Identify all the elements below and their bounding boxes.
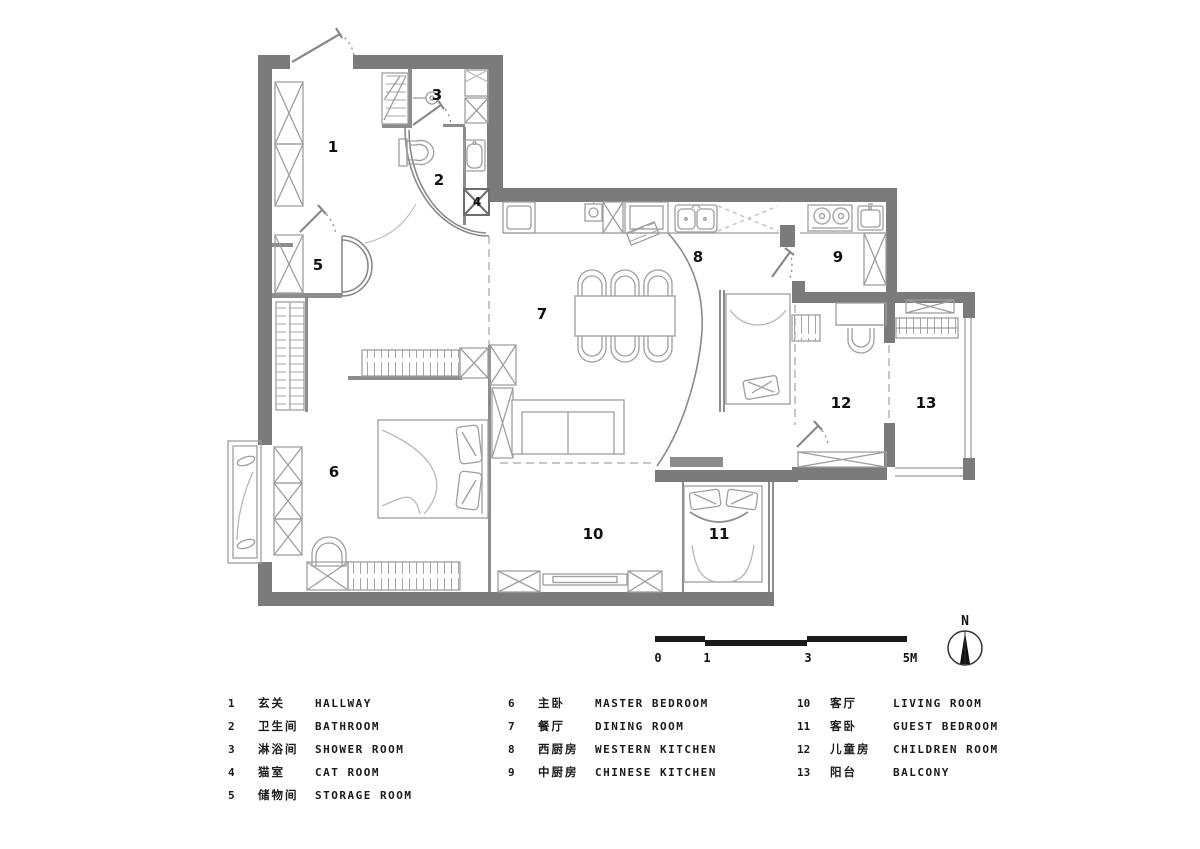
legend-room-name-en: MASTER BEDROOM — [595, 692, 709, 715]
door-swing-arc — [365, 204, 416, 243]
legend-room-name-cn: 中厨房 — [538, 761, 595, 784]
legend-row: 6 主卧 MASTER BEDROOM — [508, 692, 717, 715]
legend-room-number: 2 — [228, 715, 258, 738]
sofa-icon — [512, 400, 624, 454]
legend-room-number: 10 — [797, 692, 830, 715]
small-sink-icon — [585, 201, 602, 221]
cabinet-icon — [498, 571, 540, 592]
north-label: N — [961, 614, 969, 629]
scale-bar: 0 1 3 5M — [654, 636, 917, 665]
legend-row: 4 猫室 CAT ROOM — [228, 761, 412, 784]
dining-table-icon — [575, 296, 675, 336]
legend-room-name-en: STORAGE ROOM — [315, 784, 412, 807]
kitchen-door-icon — [772, 248, 794, 278]
entry-door-icon — [292, 28, 354, 62]
desk-chair-icon — [848, 328, 874, 353]
legend-room-number: 9 — [508, 761, 538, 784]
legend-column-3: 10 客厅 LIVING ROOM 11 客卧 GUEST BEDROOM 12… — [797, 692, 999, 784]
stove-icon — [808, 205, 852, 231]
legend-row: 12 儿童房 CHILDREN ROOM — [797, 738, 999, 761]
bay-window — [228, 441, 261, 563]
room-label-8: 8 — [693, 248, 703, 266]
room-label-11: 11 — [709, 525, 730, 543]
legend-room-number: 4 — [228, 761, 258, 784]
legend-column-2: 6 主卧 MASTER BEDROOM 7 餐厅 DINING ROOM 8 西… — [508, 692, 717, 784]
room-10-living — [498, 400, 662, 592]
legend-room-name-cn: 主卧 — [538, 692, 595, 715]
shelf-icon — [465, 70, 488, 96]
wardrobe-hanging-icon — [348, 562, 460, 590]
cabinet-icon — [274, 447, 302, 483]
legend-room-name-cn: 客卧 — [830, 715, 893, 738]
legend-room-name-cn: 餐厅 — [538, 715, 595, 738]
legend-room-name-en: SHOWER ROOM — [315, 738, 404, 761]
washbasin-icon — [464, 140, 485, 171]
floor-plan-page: 1 2 3 4 5 6 7 8 9 10 11 12 13 0 1 3 5M N… — [0, 0, 1200, 849]
double-bed-icon — [378, 420, 488, 518]
scale-tick-5m: 5M — [903, 651, 917, 665]
legend-room-number: 1 — [228, 692, 258, 715]
room-3-shower — [413, 70, 488, 123]
room-8-western-kitchen — [503, 201, 779, 245]
legend-room-number: 8 — [508, 738, 538, 761]
cabinet-icon — [490, 345, 516, 385]
floor-plan-drawing: 1 2 3 4 5 6 7 8 9 10 11 12 13 0 1 3 5M N — [0, 0, 1200, 680]
legend-room-name-en: DINING ROOM — [595, 715, 684, 738]
legend-room-name-en: WESTERN KITCHEN — [595, 738, 717, 761]
legend-room-number: 12 — [797, 738, 830, 761]
legend-row: 1 玄关 HALLWAY — [228, 692, 412, 715]
room-label-4: 4 — [473, 195, 481, 209]
wardrobe-icon — [275, 144, 303, 206]
legend-room-name-en: CAT ROOM — [315, 761, 380, 784]
children-room-door-icon — [797, 421, 828, 447]
storage-door-icon — [300, 205, 336, 235]
legend-room-name-en: GUEST BEDROOM — [893, 715, 999, 738]
north-arrow-icon: N — [948, 614, 982, 665]
legend-room-name-cn: 玄关 — [258, 692, 315, 715]
legend-room-name-cn: 阳台 — [830, 761, 893, 784]
room-label-7: 7 — [537, 305, 547, 323]
desk-icon — [836, 303, 886, 325]
legend-room-name-en: CHINESE KITCHEN — [595, 761, 717, 784]
legend-row: 5 储物间 STORAGE ROOM — [228, 784, 412, 807]
legend-row: 11 客卧 GUEST BEDROOM — [797, 715, 999, 738]
legend-room-name-en: LIVING ROOM — [893, 692, 982, 715]
legend-row: 13 阳台 BALCONY — [797, 761, 999, 784]
cabinet-icon — [864, 233, 886, 285]
cabinet-icon — [465, 98, 488, 123]
legend-room-number: 11 — [797, 715, 830, 738]
room-13-balcony — [896, 300, 958, 338]
dining-chairs-bottom — [578, 336, 672, 362]
room-label-5: 5 — [313, 256, 323, 274]
room-9-chinese-kitchen — [800, 204, 886, 285]
legend-room-number: 5 — [228, 784, 258, 807]
legend-row: 8 西厨房 WESTERN KITCHEN — [508, 738, 717, 761]
legend-row: 2 卫生间 BATHROOM — [228, 715, 412, 738]
scale-tick-3: 3 — [804, 651, 811, 665]
cabinet-icon — [492, 388, 513, 458]
wardrobe-hanging-icon — [362, 350, 460, 376]
legend-room-name-cn: 淋浴间 — [258, 738, 315, 761]
wardrobe-icon — [275, 82, 303, 144]
wardrobe-icon — [798, 452, 886, 467]
scale-tick-0: 0 — [654, 651, 661, 665]
room-label-13: 13 — [916, 394, 937, 412]
room-5-storage — [342, 236, 372, 296]
legend-room-name-cn: 客厅 — [830, 692, 893, 715]
room-12-children-room — [726, 294, 886, 467]
room-label-2: 2 — [434, 171, 444, 189]
child-bed-icon — [726, 294, 790, 404]
legend-room-name-cn: 储物间 — [258, 784, 315, 807]
cabinet-icon — [274, 519, 302, 555]
legend-room-name-cn: 卫生间 — [258, 715, 315, 738]
legend-room-number: 3 — [228, 738, 258, 761]
dining-chairs-top — [578, 270, 672, 296]
legend-room-name-cn: 儿童房 — [830, 738, 893, 761]
kitchen-sink-icon — [858, 204, 883, 230]
cabinet-icon — [274, 483, 302, 519]
legend-room-number: 6 — [508, 692, 538, 715]
room-label-9: 9 — [833, 248, 843, 266]
legend-row: 9 中厨房 CHINESE KITCHEN — [508, 761, 717, 784]
kitchen-curved-wall — [657, 233, 702, 466]
cabinet-icon — [460, 348, 488, 378]
scale-tick-1: 1 — [703, 651, 710, 665]
legend-room-name-en: HALLWAY — [315, 692, 372, 715]
legend-row: 7 餐厅 DINING ROOM — [508, 715, 717, 738]
ladder-icon — [792, 315, 820, 341]
room-label-3: 3 — [432, 86, 442, 104]
legend-room-number: 7 — [508, 715, 538, 738]
legend-room-name-en: BATHROOM — [315, 715, 380, 738]
cutting-board-icon — [626, 222, 659, 245]
legend-room-name-cn: 猫室 — [258, 761, 315, 784]
room-label-1: 1 — [328, 138, 338, 156]
bathroom-curved-wall-inner — [409, 130, 486, 233]
cabinet-icon — [603, 202, 623, 233]
cabinet-icon — [628, 571, 662, 592]
toilet-icon — [399, 139, 434, 166]
room-label-12: 12 — [831, 394, 852, 412]
legend-room-name-cn: 西厨房 — [538, 738, 595, 761]
room-label-10: 10 — [583, 525, 604, 543]
legend-room-number: 13 — [797, 761, 830, 784]
double-sink-icon — [675, 205, 717, 232]
legend-row: 10 客厅 LIVING ROOM — [797, 692, 999, 715]
legend-row: 3 淋浴间 SHOWER ROOM — [228, 738, 412, 761]
legend-room-name-en: CHILDREN ROOM — [893, 738, 999, 761]
room-label-6: 6 — [329, 463, 339, 481]
legend-room-name-en: BALCONY — [893, 761, 950, 784]
tv-console-icon — [543, 574, 627, 585]
legend-column-1: 1 玄关 HALLWAY 2 卫生间 BATHROOM 3 淋浴间 SHOWER… — [228, 692, 412, 807]
